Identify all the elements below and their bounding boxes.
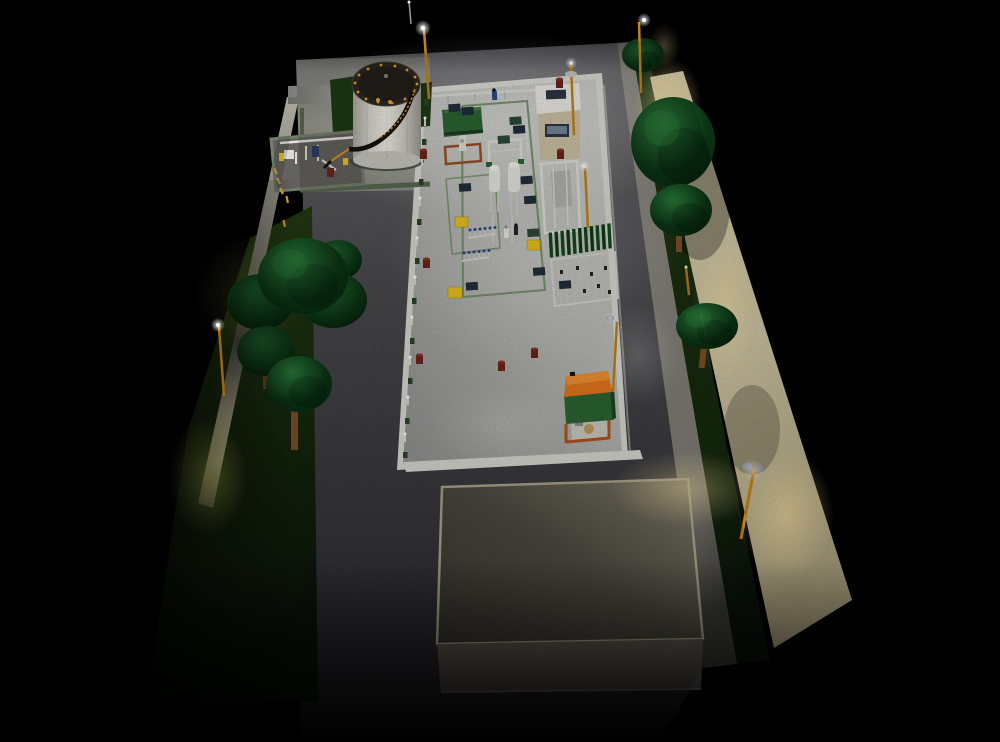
scene-3d-render (0, 0, 1000, 742)
render-viewport[interactable] (0, 0, 1000, 742)
